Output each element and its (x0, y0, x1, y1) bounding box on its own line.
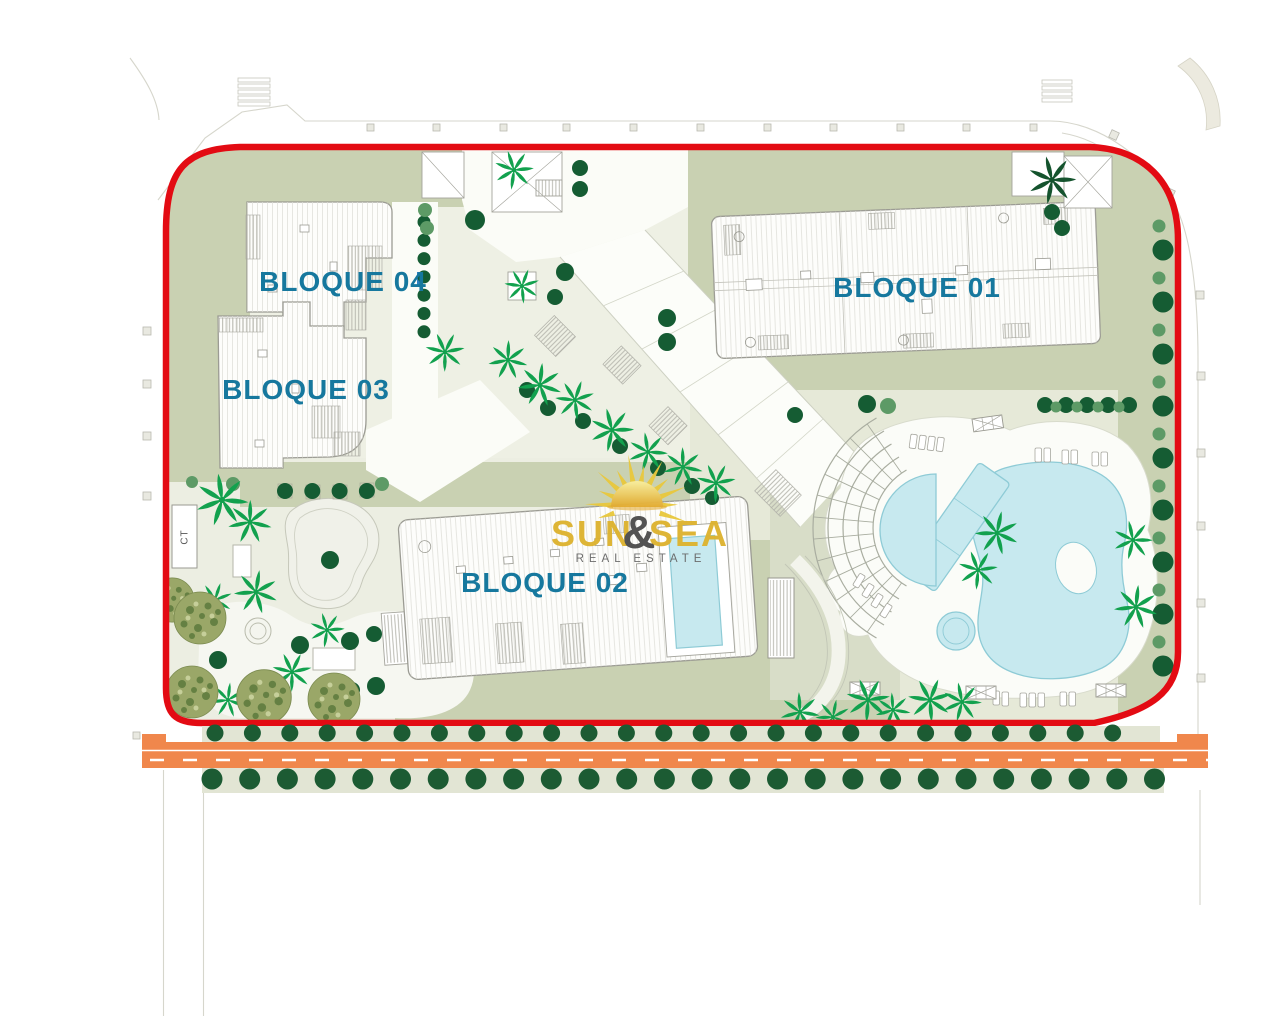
crosswalk (238, 78, 270, 106)
logo-tagline: REAL ESTATE (576, 553, 707, 565)
logo-word-sea: SEA (649, 513, 729, 554)
road-median-arc (1178, 58, 1220, 130)
transformer-label: CT (180, 529, 191, 544)
corner-arc-left (130, 58, 159, 120)
parcel-interior: CT (150, 140, 1190, 737)
transformer-box: CT (172, 505, 197, 568)
logo-word-sun: SUN (551, 513, 633, 554)
bloque-03-label: BLOQUE 03 (222, 374, 390, 405)
crosswalk (1042, 80, 1072, 102)
stair-tower (768, 578, 794, 658)
site-plan-drawing: CT (0, 0, 1280, 1024)
street-section (142, 726, 1208, 793)
bloque-04-label: BLOQUE 04 (259, 266, 427, 297)
garden-structure (313, 648, 355, 670)
garden-structure (233, 545, 251, 577)
fountain (245, 618, 271, 644)
bloque-02-label: BLOQUE 02 (461, 567, 629, 598)
site-plan-canvas: CT (0, 0, 1280, 1024)
bloque-01-label: BLOQUE 01 (833, 272, 1001, 303)
road (142, 742, 1208, 768)
